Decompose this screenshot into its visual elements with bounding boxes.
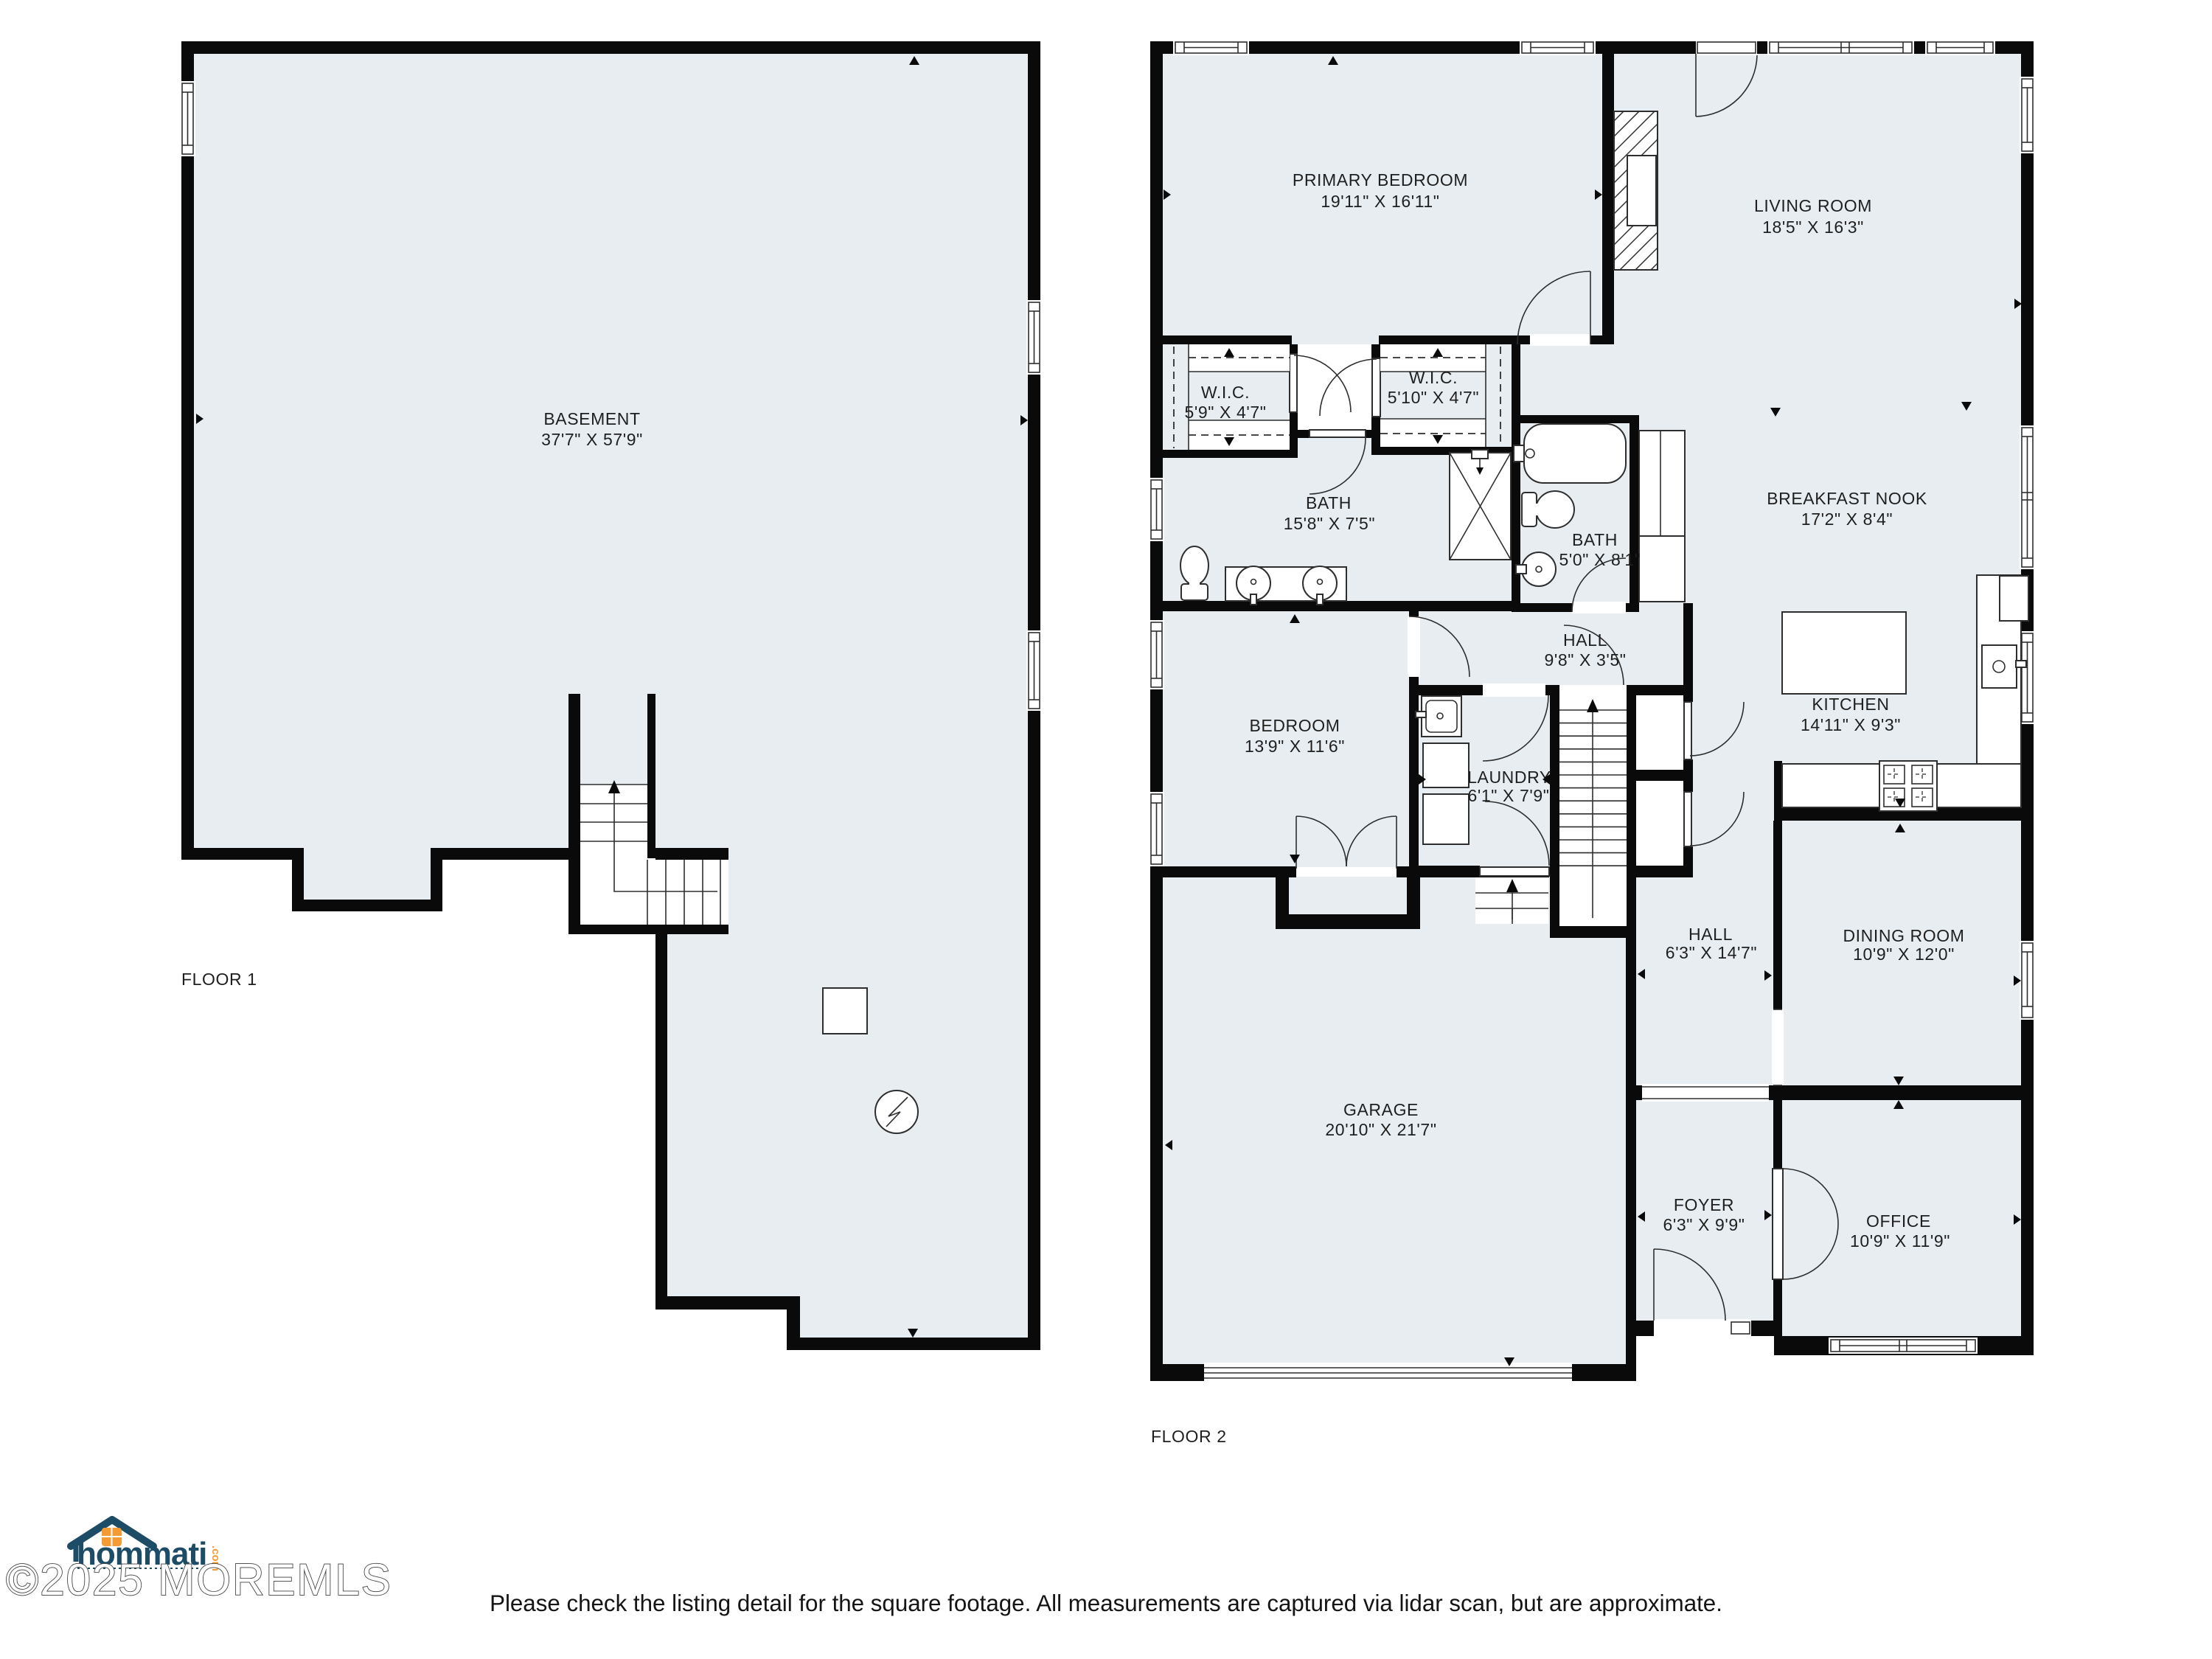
svg-text:20'10" X 21'7": 20'10" X 21'7" (1325, 1120, 1436, 1139)
svg-text:19'11" X 16'11": 19'11" X 16'11" (1321, 192, 1439, 211)
svg-text:5'10" X 4'7": 5'10" X 4'7" (1388, 388, 1479, 407)
svg-text:15'8" X 7'5": 15'8" X 7'5" (1284, 514, 1375, 533)
svg-text:6'1" X 7'9": 6'1" X 7'9" (1468, 786, 1550, 805)
svg-text:5'0" X 8'1": 5'0" X 8'1" (1559, 550, 1641, 569)
svg-text:HALL: HALL (1688, 925, 1733, 944)
svg-text:Please check the listing detai: Please check the listing detail for the … (490, 1590, 1722, 1616)
svg-text:9'8" X 3'5": 9'8" X 3'5" (1545, 650, 1627, 669)
svg-text:BEDROOM: BEDROOM (1249, 716, 1340, 735)
svg-text:13'9" X 11'6": 13'9" X 11'6" (1245, 737, 1345, 756)
svg-text:W.I.C.: W.I.C. (1409, 368, 1458, 387)
svg-text:FLOOR 2: FLOOR 2 (1151, 1427, 1227, 1446)
svg-text:DINING ROOM: DINING ROOM (1843, 926, 1964, 945)
svg-text:GARAGE: GARAGE (1343, 1100, 1419, 1119)
svg-text:6'3" X 9'9": 6'3" X 9'9" (1663, 1215, 1745, 1234)
svg-text:LAUNDRY: LAUNDRY (1467, 768, 1551, 787)
svg-text:OFFICE: OFFICE (1866, 1211, 1931, 1231)
svg-text:FOYER: FOYER (1674, 1195, 1734, 1214)
svg-text:10'9" X 12'0": 10'9" X 12'0" (1853, 945, 1955, 964)
svg-text:6'3" X 14'7": 6'3" X 14'7" (1666, 943, 1757, 962)
svg-text:BREAKFAST NOOK: BREAKFAST NOOK (1767, 489, 1927, 508)
svg-text:FLOOR 1: FLOOR 1 (181, 970, 257, 989)
svg-text:37'7" X 57'9": 37'7" X 57'9" (541, 430, 643, 449)
svg-text:17'2" X 8'4": 17'2" X 8'4" (1801, 509, 1893, 529)
svg-text:14'11" X 9'3": 14'11" X 9'3" (1801, 715, 1901, 734)
svg-text:BASEMENT: BASEMENT (543, 409, 640, 428)
svg-text:HALL: HALL (1563, 630, 1607, 650)
svg-text:PRIMARY BEDROOM: PRIMARY BEDROOM (1293, 170, 1468, 189)
svg-text:LIVING ROOM: LIVING ROOM (1754, 196, 1872, 215)
svg-text:10'9" X 11'9": 10'9" X 11'9" (1850, 1231, 1950, 1251)
svg-text:18'5" X 16'3": 18'5" X 16'3" (1762, 218, 1864, 237)
svg-text:BATH: BATH (1306, 493, 1352, 512)
svg-text:5'9" X 4'7": 5'9" X 4'7" (1185, 403, 1267, 422)
svg-text:KITCHEN: KITCHEN (1812, 695, 1889, 714)
svg-text:BATH: BATH (1572, 530, 1618, 549)
svg-text:W.I.C.: W.I.C. (1201, 383, 1250, 402)
svg-text:©2025 MOREMLS: ©2025 MOREMLS (6, 1555, 392, 1604)
